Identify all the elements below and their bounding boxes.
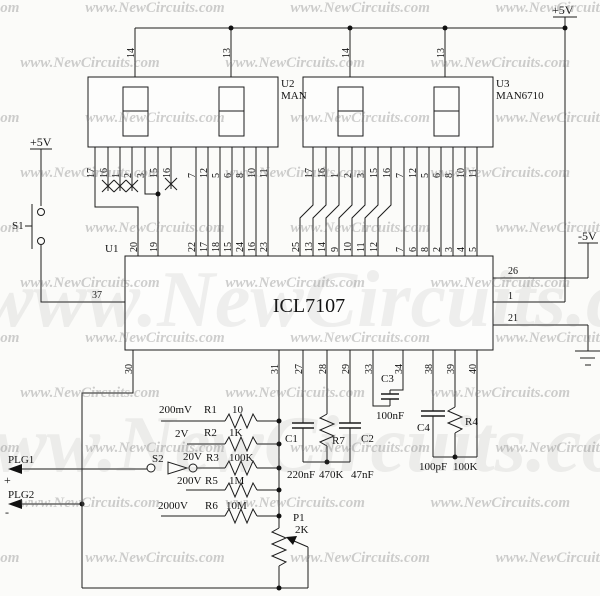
u2-pin-label: 6 xyxy=(223,173,234,178)
u1-top-pin-label: 15 xyxy=(223,242,234,252)
display-u2-body xyxy=(88,77,278,147)
u1-top-pin-label: 19 xyxy=(149,242,160,252)
plg1-sign-label: + xyxy=(4,473,11,487)
u1-top-pin-label: 8 xyxy=(420,247,431,252)
u3-pin-label: 12 xyxy=(408,168,419,178)
display-u3-body xyxy=(303,77,493,147)
c2-value-label: 47nF xyxy=(351,469,374,481)
p1-value-label: 2K xyxy=(295,524,309,536)
p1-ref-label: P1 xyxy=(293,512,305,524)
resistor-ref-label: R5 xyxy=(205,475,218,487)
u1-bottom-pin-label: 28 xyxy=(318,364,329,374)
range-label: 20V xyxy=(183,451,202,463)
u2-part-label: MAN xyxy=(281,90,307,102)
r7-value-label: 470K xyxy=(319,469,344,481)
u2-pin-label: 17 xyxy=(86,168,97,178)
vcc-left-label: +5V xyxy=(30,135,52,149)
u3-pin-label: 17 xyxy=(304,168,315,178)
u3-pin-label: 11 xyxy=(468,168,479,178)
range-label: 200V xyxy=(177,475,202,487)
c1-ref-label: C1 xyxy=(285,433,298,445)
u3-top-pin-label: 13 xyxy=(436,48,447,58)
u3-pin-label: 6 xyxy=(432,173,443,178)
c4-value-label: 100pF xyxy=(419,461,447,473)
u2-pin-label: 5 xyxy=(211,173,222,178)
capacitor-c1-symbol xyxy=(292,423,314,428)
vee-label: -5V xyxy=(578,229,597,243)
u1-bottom-pin-label: 38 xyxy=(424,364,435,374)
r4-value-label: 100K xyxy=(453,461,478,473)
u2-pin-label: 2 xyxy=(123,173,134,178)
range-label: 200mV xyxy=(159,404,192,416)
u2-pin-label: 1 xyxy=(111,173,122,178)
u1-top-pin-label: 18 xyxy=(211,242,222,252)
u1-top-pin-label: 5 xyxy=(468,247,479,252)
s1-label: S1 xyxy=(12,220,24,232)
capacitor-c3-symbol xyxy=(381,394,399,399)
ground-icon xyxy=(575,351,600,365)
s2-label: S2 xyxy=(152,453,164,465)
u2-top-pin-label: 13 xyxy=(222,48,233,58)
u1-top-pin-label: 25 xyxy=(291,242,302,252)
u1-bottom-pin-label: 40 xyxy=(468,364,479,374)
p1-wiper-arrow-icon xyxy=(286,536,297,545)
c3-ref-label: C3 xyxy=(381,373,394,385)
u1-bottom-pin-label: 33 xyxy=(364,364,375,374)
u1-top-pin-label: 24 xyxy=(235,242,246,252)
u1-right-pin-label: 26 xyxy=(508,266,518,277)
u1-top-pin-label: 23 xyxy=(259,242,270,252)
u3-pin-label: 10 xyxy=(456,168,467,178)
resistor-ref-label: R1 xyxy=(204,404,217,416)
u1-pin37-label: 37 xyxy=(92,290,102,301)
u3-pin-label: 16 xyxy=(382,168,393,178)
u1-top-pin-label: 7 xyxy=(395,247,406,252)
u1-top-pin-label: 16 xyxy=(247,242,258,252)
u2-pin-label: 11 xyxy=(259,168,270,178)
plg2-label: PLG2 xyxy=(8,489,34,501)
u1-ref-label: U1 xyxy=(105,243,118,255)
nc-x-marks xyxy=(102,178,177,192)
u3-top-pin-label: 14 xyxy=(341,48,352,58)
u3-part-label: MAN6710 xyxy=(496,90,544,102)
r4-ref-label: R4 xyxy=(465,416,478,428)
u1-bottom-pin-label: 29 xyxy=(341,364,352,374)
u1-top-pin-label: 20 xyxy=(129,242,140,252)
u1-top-pin-label: 6 xyxy=(408,247,419,252)
schematic-page: +5V +5V -5V U2 MAN 14 13 17 16 1 2 3 15 … xyxy=(0,0,600,596)
u3-pin-label: 16 xyxy=(317,168,328,178)
u2-pin-label: 16 xyxy=(162,168,173,178)
vcc-right-label: +5V xyxy=(552,3,574,17)
u1-top-pin-label: 12 xyxy=(369,242,380,252)
range-label: 2V xyxy=(175,428,189,440)
capacitor-c4-symbol xyxy=(421,411,445,416)
u1-top-pin-label: 22 xyxy=(187,242,198,252)
u3-pin-label: 15 xyxy=(369,168,380,178)
u1-top-pin-label: 13 xyxy=(304,242,315,252)
c1-value-label: 220nF xyxy=(287,469,315,481)
u1-top-pin-label: 3 xyxy=(444,247,455,252)
u1-right-pin-label: 21 xyxy=(508,313,518,324)
u2-pin-label: 16 xyxy=(99,168,110,178)
u3-pin-label: 8 xyxy=(444,173,455,178)
resistor-ref-label: R3 xyxy=(206,452,219,464)
circuit-schematic: +5V +5V -5V U2 MAN 14 13 17 16 1 2 3 15 … xyxy=(0,0,600,596)
u2-top-pin-label: 14 xyxy=(126,48,137,58)
u2-ref-label: U2 xyxy=(281,78,294,90)
u1-bottom-pin-label: 27 xyxy=(294,364,305,374)
capacitor-c2-symbol xyxy=(339,423,361,428)
u1-bottom-pin-label: 30 xyxy=(124,364,135,374)
range-label: 2000V xyxy=(158,500,188,512)
resistor-r2-symbol xyxy=(225,437,257,451)
u1-right-pin-label: 1 xyxy=(508,291,513,302)
resistor-value-label: 1K xyxy=(229,427,243,439)
switch-s1-symbol xyxy=(25,204,45,249)
u1-bottom-pin-label: 39 xyxy=(446,364,457,374)
u1-bottom-pin-label: 34 xyxy=(394,364,405,374)
resistor-value-label: 10M xyxy=(226,500,247,512)
u3-pin-label: 3 xyxy=(356,173,367,178)
u2-pin-label: 3 xyxy=(136,173,147,178)
resistor-value-label: 100K xyxy=(229,452,254,464)
u1-top-pin-label: 2 xyxy=(432,247,443,252)
u2-pin-label: 12 xyxy=(199,168,210,178)
resistor-r4-symbol xyxy=(448,407,462,433)
u1-part-label: ICL7107 xyxy=(273,295,345,317)
u1-top-pin-label: 4 xyxy=(456,247,467,252)
u3-pin-label: 5 xyxy=(420,173,431,178)
resistor-r1-symbol xyxy=(225,414,257,428)
u1-top-pin-label: 9 xyxy=(330,247,341,252)
c2-ref-label: C2 xyxy=(361,433,374,445)
resistor-value-label: 1M xyxy=(229,475,245,487)
resistor-ref-label: R2 xyxy=(204,427,217,439)
u2-pin-label: 8 xyxy=(235,173,246,178)
u3-pin-label: 1 xyxy=(330,173,341,178)
potentiometer-p1-symbol xyxy=(272,528,286,566)
c4-ref-label: C4 xyxy=(417,422,430,434)
u1-top-pin-label: 10 xyxy=(343,242,354,252)
u2-pin-label: 7 xyxy=(187,173,198,178)
plg2-sign-label: - xyxy=(5,505,9,519)
u3-pin-label: 2 xyxy=(343,173,354,178)
r7-ref-label: R7 xyxy=(332,435,345,447)
u3-ref-label: U3 xyxy=(496,78,510,90)
u3-pin-label: 7 xyxy=(395,173,406,178)
u1-top-pin-label: 11 xyxy=(356,242,367,252)
plg1-label: PLG1 xyxy=(8,454,34,466)
resistor-value-label: 10 xyxy=(232,404,244,416)
u1-bottom-pin-label: 31 xyxy=(270,364,281,374)
u2-pin-label: 10 xyxy=(247,168,258,178)
u1-top-pin-label: 14 xyxy=(317,242,328,252)
u2-pin-label: 15 xyxy=(149,168,160,178)
u1-top-pin-label: 17 xyxy=(199,242,210,252)
c3-value-label: 100nF xyxy=(376,410,404,422)
resistor-ref-label: R6 xyxy=(205,500,218,512)
